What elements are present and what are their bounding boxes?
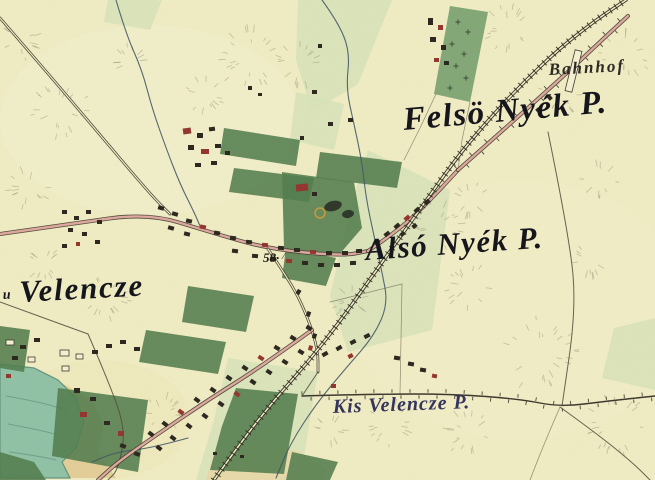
map-label-bahnhof: Bahnhof <box>547 56 626 79</box>
map-label-spot-height: 58· <box>263 250 279 265</box>
map-label-velencze: Velencze <box>19 268 145 309</box>
historical-map-viewport[interactable]: BahnhofFelsö Nyék P.Alsó Nyék P.uVelencz… <box>0 0 655 480</box>
map-canvas: BahnhofFelsö Nyék P.Alsó Nyék P.uVelencz… <box>0 0 655 480</box>
map-label-velencze-prefix: u <box>2 288 11 303</box>
